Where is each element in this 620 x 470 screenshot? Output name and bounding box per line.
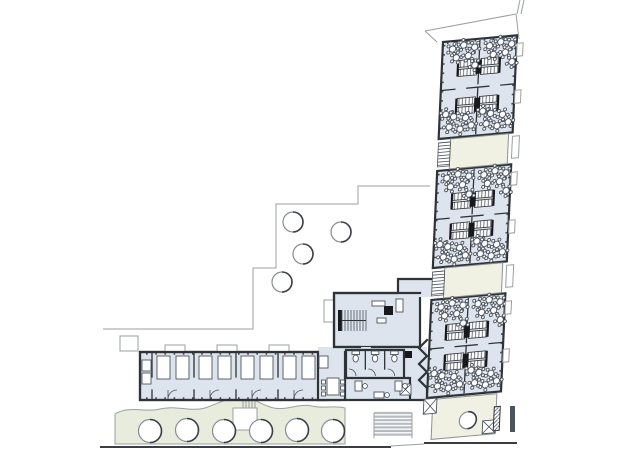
chair	[493, 296, 496, 299]
chair	[486, 108, 489, 111]
window-tab	[503, 349, 510, 363]
chair	[476, 108, 479, 111]
chair	[456, 47, 459, 50]
chair	[472, 176, 475, 179]
cubby-row	[451, 231, 469, 240]
classroom-wing	[422, 33, 524, 440]
chair	[504, 38, 507, 41]
chair	[444, 250, 447, 253]
chair	[440, 260, 443, 263]
chair	[472, 128, 475, 131]
chair	[508, 167, 511, 170]
chair	[469, 116, 472, 119]
chair	[478, 170, 481, 173]
cubby-unit	[157, 356, 170, 379]
chair	[441, 117, 444, 120]
chair	[444, 319, 447, 322]
window-tab	[514, 90, 521, 104]
chair	[486, 368, 489, 371]
desk	[355, 381, 362, 391]
chair	[476, 308, 479, 311]
chair	[466, 49, 469, 52]
chair	[322, 380, 326, 384]
floor-plan-page	[0, 0, 620, 470]
chair	[450, 60, 453, 63]
chair	[478, 176, 481, 179]
chair	[466, 323, 469, 326]
chair	[489, 377, 492, 380]
chair	[444, 377, 447, 380]
chair	[449, 111, 452, 114]
wc-toilet	[372, 355, 377, 362]
chair	[506, 113, 509, 116]
chair	[490, 39, 493, 42]
chair	[466, 305, 469, 308]
chair	[460, 258, 463, 261]
chair	[465, 188, 468, 191]
chair	[488, 168, 491, 171]
table	[453, 54, 459, 61]
chair	[451, 296, 454, 299]
chair	[509, 190, 512, 193]
terrace-stair	[432, 271, 445, 296]
terrace	[443, 263, 502, 298]
chair	[442, 126, 445, 129]
retaining-wall	[510, 406, 515, 432]
chair	[478, 47, 481, 50]
chair	[459, 317, 462, 320]
chair	[471, 41, 474, 44]
chair	[492, 239, 495, 242]
chair	[447, 392, 450, 395]
desk	[374, 392, 384, 398]
chair	[490, 259, 493, 262]
chair	[472, 244, 475, 247]
table	[462, 252, 468, 259]
table	[460, 302, 466, 309]
chair	[434, 241, 437, 244]
chair	[465, 121, 468, 124]
chair	[465, 299, 468, 302]
chair	[498, 167, 501, 170]
chair	[479, 123, 482, 126]
chair	[486, 250, 489, 253]
chair	[498, 323, 501, 326]
chair	[489, 313, 492, 316]
chair	[457, 323, 460, 326]
chair	[441, 174, 444, 177]
chair	[341, 386, 345, 390]
chair	[459, 299, 462, 302]
desk-group	[374, 392, 389, 398]
chair	[493, 48, 496, 51]
cubby-row	[469, 321, 487, 330]
chair	[445, 371, 448, 374]
dining-table	[322, 378, 345, 396]
chair	[462, 38, 465, 41]
storage-core	[462, 353, 469, 368]
chair	[468, 65, 471, 68]
chair	[448, 260, 451, 263]
chair	[466, 180, 469, 183]
chair	[491, 127, 494, 130]
chair	[503, 46, 506, 49]
chair	[477, 41, 480, 44]
chair	[456, 299, 459, 302]
chair	[475, 376, 478, 379]
column-x-box	[423, 398, 437, 414]
terrace-stair	[437, 142, 450, 167]
chair	[476, 314, 479, 317]
chair	[466, 111, 469, 114]
chair	[499, 191, 502, 194]
chair	[456, 112, 459, 115]
chair	[459, 48, 462, 51]
chair	[449, 371, 452, 374]
window-tab	[511, 172, 518, 186]
table	[493, 377, 499, 384]
chair	[455, 370, 458, 373]
chair	[472, 305, 475, 308]
chair	[492, 121, 495, 124]
chair	[472, 373, 475, 376]
cubby-unit	[302, 356, 315, 379]
balcony	[511, 136, 519, 159]
chair	[478, 247, 481, 250]
chair	[428, 370, 431, 373]
chair	[431, 384, 434, 387]
chair	[482, 367, 485, 370]
chair	[498, 119, 501, 122]
chair	[502, 185, 505, 188]
chair	[497, 175, 500, 178]
chair	[509, 124, 512, 127]
chair	[484, 48, 487, 51]
chair	[496, 314, 499, 317]
chair	[496, 129, 499, 132]
cubby-row	[475, 190, 493, 199]
chair	[462, 54, 465, 57]
cubby-unit	[260, 356, 273, 379]
chair	[497, 254, 500, 257]
chair	[478, 114, 481, 117]
chair	[456, 61, 459, 64]
chair	[497, 306, 500, 309]
cubby-unit	[241, 356, 254, 379]
chair	[442, 389, 445, 392]
chair	[466, 373, 469, 376]
core-junction	[318, 279, 432, 400]
hall-table	[377, 318, 386, 323]
chair	[341, 380, 345, 384]
cubby-row	[445, 362, 463, 371]
chair	[502, 167, 505, 170]
chair	[446, 301, 449, 304]
hall-cabinet	[396, 299, 403, 312]
exterior-stair	[374, 413, 412, 438]
window-tab	[517, 43, 524, 57]
wc-toilet	[392, 355, 397, 362]
chair	[481, 247, 484, 250]
chair	[496, 296, 499, 299]
chair	[503, 108, 506, 111]
chair	[456, 183, 459, 186]
chair	[465, 367, 468, 370]
chair	[458, 251, 461, 254]
chair	[459, 133, 462, 136]
chair	[503, 320, 506, 323]
chair	[455, 243, 458, 246]
chair	[493, 164, 496, 167]
chair	[450, 54, 453, 57]
chair	[455, 124, 458, 127]
chair	[439, 111, 442, 114]
chair	[446, 131, 449, 134]
chair	[451, 180, 454, 183]
chair	[490, 245, 493, 248]
chair	[454, 130, 457, 133]
chair	[463, 247, 466, 250]
chair	[484, 374, 487, 377]
cubby-row	[452, 201, 470, 210]
cubby-unit	[176, 356, 189, 379]
chair	[478, 65, 481, 68]
chair	[446, 121, 449, 124]
chair	[503, 124, 506, 127]
chair	[492, 367, 495, 370]
chair	[488, 177, 491, 180]
cubby-row	[474, 199, 492, 208]
chair	[450, 120, 453, 123]
table	[456, 381, 462, 388]
annex-shelf	[319, 356, 328, 368]
chair	[502, 118, 505, 121]
window-tab	[505, 301, 512, 315]
chair	[456, 51, 459, 54]
chair	[478, 244, 481, 247]
cubby-row	[446, 353, 464, 362]
chair	[429, 376, 432, 379]
chair	[435, 309, 438, 312]
chair	[473, 69, 476, 72]
chair	[451, 172, 454, 175]
courtyard-trees	[272, 212, 351, 292]
wc-toilet	[353, 355, 358, 362]
chair	[504, 194, 507, 197]
chair	[493, 44, 496, 47]
wc-tank	[371, 351, 379, 355]
cubby-row	[480, 66, 498, 75]
chair	[436, 302, 439, 305]
chair	[445, 189, 448, 192]
desk	[395, 381, 402, 391]
chair	[508, 38, 511, 41]
site-edge-mid	[391, 444, 424, 446]
chair	[437, 256, 440, 259]
shelf-unit	[142, 373, 151, 384]
chair	[510, 65, 513, 68]
chair	[477, 257, 480, 260]
chair	[438, 370, 441, 373]
chair	[455, 307, 458, 310]
chair	[452, 317, 455, 320]
chair	[439, 317, 442, 320]
chair	[480, 238, 483, 241]
chair	[471, 51, 474, 54]
chair	[496, 115, 499, 118]
table	[499, 248, 505, 255]
chair	[322, 392, 326, 396]
cubby-row	[473, 220, 491, 229]
wc-tank	[391, 351, 399, 355]
desk-chair	[403, 384, 408, 389]
chair	[487, 308, 490, 311]
chair	[469, 252, 472, 255]
chair	[454, 177, 457, 180]
chair	[441, 180, 444, 183]
chair	[453, 42, 456, 45]
chair	[506, 249, 509, 252]
chair	[494, 40, 497, 43]
table	[490, 51, 496, 58]
chair	[461, 123, 464, 126]
chair	[439, 238, 442, 241]
chair	[453, 249, 456, 252]
chair	[503, 254, 506, 257]
table	[497, 298, 503, 305]
chair	[467, 41, 470, 44]
balcony	[506, 265, 514, 288]
cubby-row	[469, 330, 487, 339]
chair	[435, 376, 438, 379]
chair	[482, 306, 485, 309]
stair-stringer	[338, 310, 342, 331]
chair	[488, 238, 491, 241]
chair	[471, 238, 474, 241]
chair	[452, 380, 455, 383]
chair	[447, 45, 450, 48]
chair	[499, 50, 502, 53]
chair	[502, 296, 505, 299]
chair	[457, 43, 460, 46]
chair	[494, 320, 497, 323]
chair	[465, 317, 468, 320]
chair	[475, 122, 478, 125]
chair	[498, 238, 501, 241]
chair	[447, 117, 450, 120]
chair	[491, 174, 494, 177]
cubby-row	[457, 97, 475, 106]
chair	[496, 45, 499, 48]
chair	[487, 56, 490, 59]
cloakroom-wing	[120, 336, 345, 400]
chair	[497, 384, 500, 387]
floor-plan-canvas	[0, 0, 620, 470]
chair	[445, 309, 448, 312]
chair	[463, 381, 466, 384]
chair	[476, 234, 479, 237]
chair	[434, 389, 437, 392]
chair	[439, 311, 442, 314]
window-tab	[509, 220, 516, 234]
chair	[458, 188, 461, 191]
chair	[487, 187, 490, 190]
chair	[481, 379, 484, 382]
hall-bench	[372, 301, 385, 306]
chair	[471, 170, 474, 173]
chair	[447, 51, 450, 54]
chair	[468, 381, 471, 384]
chair	[451, 242, 454, 245]
chair	[450, 190, 453, 193]
chair	[507, 56, 510, 59]
chair	[435, 380, 438, 383]
chair	[460, 387, 463, 390]
chair	[479, 297, 482, 300]
chair	[483, 297, 486, 300]
chair	[512, 119, 515, 122]
chair	[470, 59, 473, 62]
chair	[457, 376, 460, 379]
chair	[460, 178, 463, 181]
chair	[487, 117, 490, 120]
chair	[470, 363, 473, 366]
chair	[466, 128, 469, 131]
chair	[505, 62, 508, 65]
chair	[341, 392, 345, 396]
chair	[448, 306, 451, 309]
chair	[471, 386, 474, 389]
chair	[442, 300, 445, 303]
cubby-unit	[218, 356, 231, 379]
cubby-unit	[199, 356, 212, 379]
chair	[466, 258, 469, 261]
chair	[445, 108, 448, 111]
chair	[441, 247, 444, 250]
chair	[461, 170, 464, 173]
chair	[500, 378, 503, 381]
chair	[500, 243, 503, 246]
chair	[503, 177, 506, 180]
chair	[472, 194, 475, 197]
chair	[465, 170, 468, 173]
entry-porch-west	[120, 336, 138, 351]
cubby-row	[451, 222, 469, 231]
chair	[450, 176, 453, 179]
chair	[322, 386, 326, 390]
garden-band	[115, 396, 345, 444]
chair	[483, 117, 486, 120]
chair	[444, 383, 447, 386]
chair	[499, 35, 502, 38]
chair	[493, 57, 496, 60]
chair	[472, 376, 475, 379]
ramp-hatch	[493, 406, 500, 431]
chair	[501, 56, 504, 59]
chair	[445, 183, 448, 186]
chair	[473, 299, 476, 302]
chair	[461, 327, 464, 330]
hall-entry-porch	[324, 300, 334, 322]
shaft	[405, 351, 412, 358]
chair	[441, 251, 444, 254]
chair	[443, 241, 446, 244]
table	[327, 378, 339, 395]
chair	[495, 185, 498, 188]
chair	[481, 374, 484, 377]
chair	[488, 293, 491, 296]
chair	[479, 385, 482, 388]
